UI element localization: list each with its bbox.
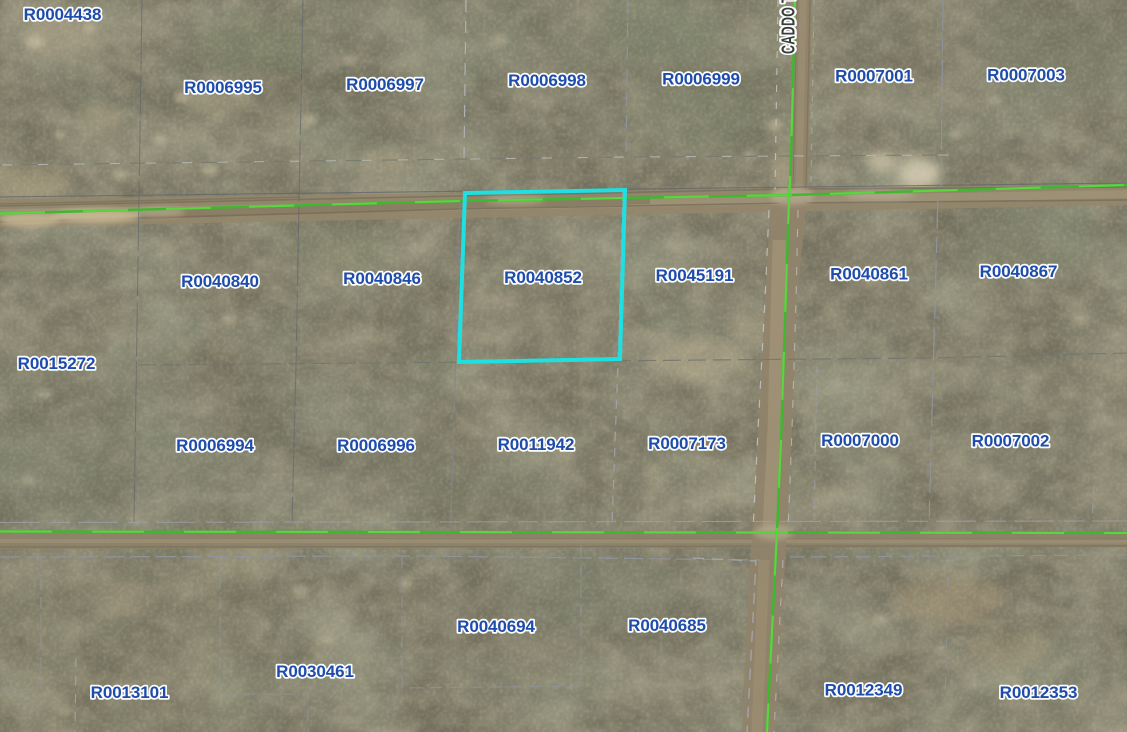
svg-text:R0040867: R0040867	[980, 262, 1058, 281]
svg-text:R0013101: R0013101	[91, 683, 169, 702]
svg-text:R0006996: R0006996	[337, 436, 415, 455]
svg-text:R0030461: R0030461	[276, 662, 354, 681]
svg-text:R0040840: R0040840	[181, 272, 259, 291]
svg-text:CADDO TR: CADDO TR	[779, 0, 799, 54]
svg-text:R0006997: R0006997	[346, 75, 424, 94]
svg-text:R0012349: R0012349	[825, 681, 903, 700]
svg-text:R0006995: R0006995	[184, 78, 262, 97]
svg-text:R0007001: R0007001	[835, 67, 913, 86]
svg-text:R0006998: R0006998	[508, 71, 586, 90]
svg-text:R0006994: R0006994	[176, 436, 254, 455]
svg-text:R0007002: R0007002	[972, 432, 1050, 451]
svg-text:R0040685: R0040685	[628, 616, 706, 635]
svg-text:R0011942: R0011942	[498, 435, 575, 454]
svg-text:R0040861: R0040861	[830, 265, 908, 284]
svg-text:R0006999: R0006999	[662, 70, 740, 89]
svg-text:R0045191: R0045191	[656, 266, 734, 285]
svg-text:R0007000: R0007000	[821, 431, 899, 450]
svg-text:R0040846: R0040846	[343, 269, 421, 288]
svg-text:R0040694: R0040694	[457, 617, 535, 636]
svg-text:R0004438: R0004438	[24, 5, 102, 24]
svg-text:R0040852: R0040852	[504, 268, 582, 287]
svg-text:R0015272: R0015272	[18, 354, 96, 373]
svg-text:R0007003: R0007003	[987, 66, 1065, 85]
svg-text:R0007173: R0007173	[648, 434, 726, 453]
svg-text:R0012353: R0012353	[1000, 683, 1078, 702]
